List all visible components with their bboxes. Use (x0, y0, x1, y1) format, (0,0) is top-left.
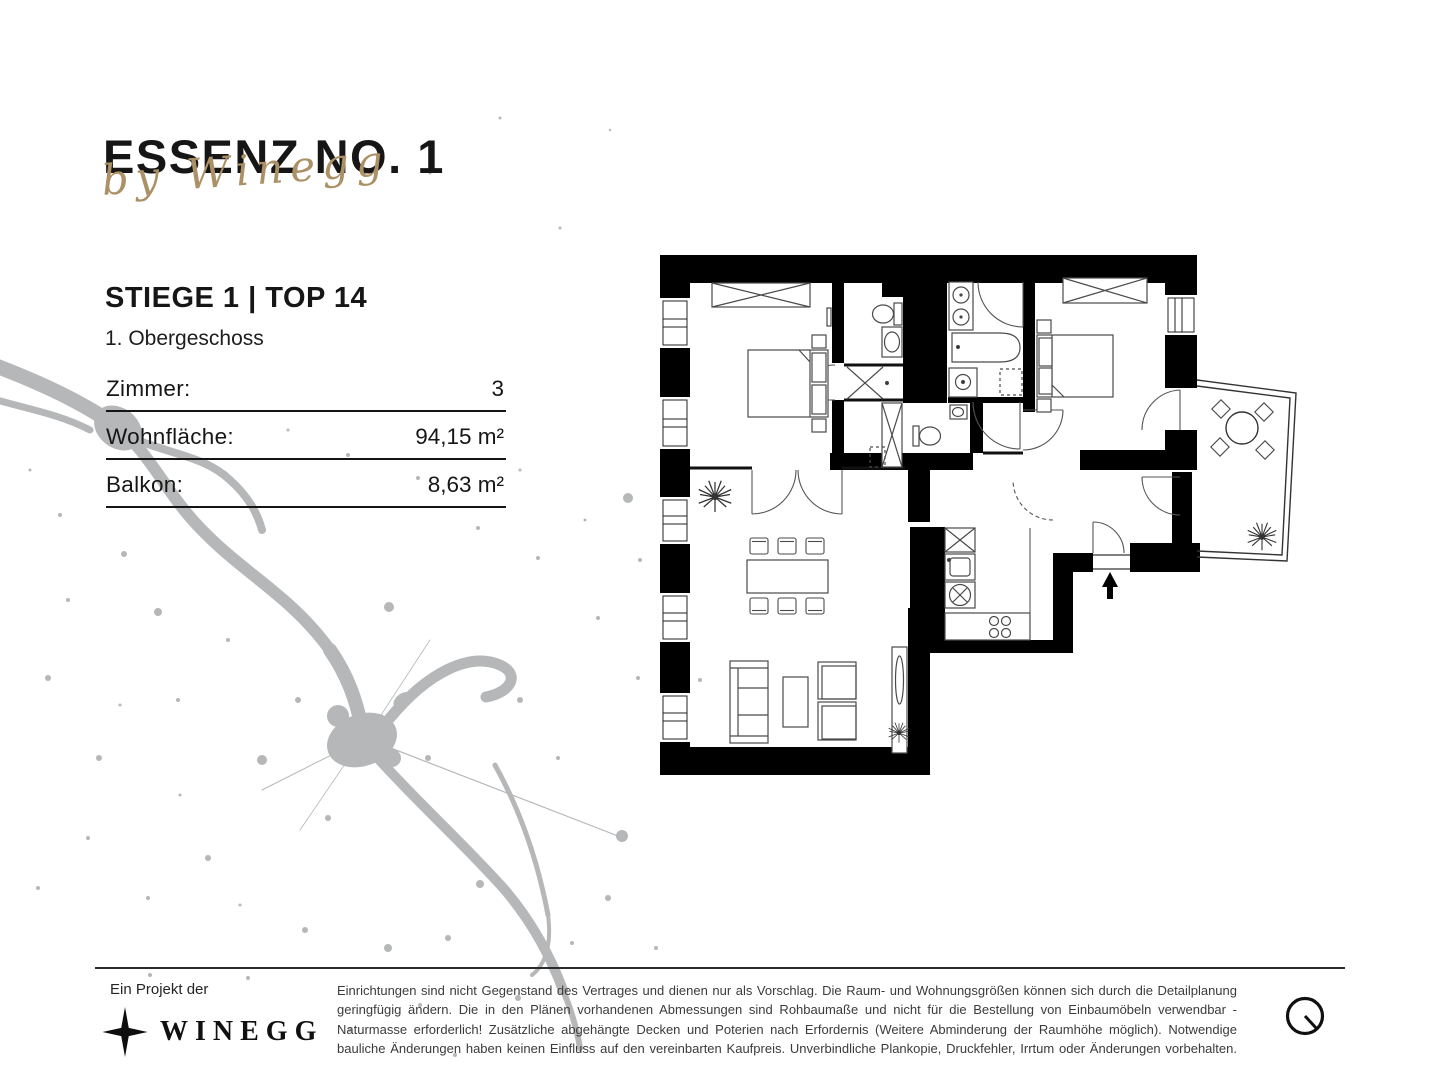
floor-label: 1. Obergeschoss (105, 327, 264, 351)
spec-label: Wohnfläche: (106, 424, 234, 450)
toilet-icon (873, 305, 894, 323)
bedroom1-furniture (712, 283, 831, 432)
spec-value: 3 (491, 376, 504, 402)
sofa-icon (730, 661, 768, 743)
armchair-icon (818, 702, 856, 740)
balcony-table (1226, 412, 1258, 444)
toilet-icon (920, 427, 941, 445)
winegg-logo: WINEGG (100, 1002, 323, 1062)
footer-divider (95, 967, 1345, 969)
spec-table: Zimmer: 3 Wohnfläche: 94,15 m² Balkon: 8… (106, 364, 506, 508)
armchair-icon (818, 662, 856, 699)
bedroom2-furniture (1037, 278, 1147, 412)
spec-row-zimmer: Zimmer: 3 (106, 364, 506, 412)
spec-label: Balkon: (106, 472, 183, 498)
bathtub-icon (952, 333, 1020, 362)
spec-row-wohnflaeche: Wohnfläche: 94,15 m² (106, 412, 506, 460)
spec-value: 8,63 m² (428, 472, 504, 498)
shower-icon (847, 367, 889, 399)
brochure-page: ESSENZ NO. 1 by Winegg STIEGE 1 | TOP 14… (0, 0, 1440, 1080)
plant-icon (1248, 523, 1277, 551)
north-orientation-icon (1283, 994, 1329, 1040)
spec-row-balkon: Balkon: 8,63 m² (106, 460, 506, 508)
plant-icon (699, 481, 732, 512)
wc-fixtures (913, 405, 967, 446)
unit-title: STIEGE 1 | TOP 14 (105, 283, 367, 315)
bathroom1-fixtures (847, 303, 902, 467)
balcony (1197, 380, 1296, 561)
disclaimer-text: Einrichtungen sind nicht Gegenstand des … (337, 981, 1237, 1059)
living-room-furniture (699, 481, 910, 753)
logo-text: WINEGG (160, 1016, 323, 1048)
kitchen-fixtures (945, 528, 1030, 640)
bathroom2-fixtures (949, 282, 1022, 397)
spec-value: 94,15 m² (415, 424, 504, 450)
spec-label: Zimmer: (106, 376, 191, 402)
coffee-table-icon (783, 677, 808, 727)
four-point-star-icon (100, 1002, 150, 1062)
entrance-arrow-icon (1102, 572, 1118, 599)
project-label: Ein Projekt der (110, 981, 208, 998)
kitchen-counter (945, 613, 1030, 640)
dining-table-icon (747, 560, 828, 593)
floor-plan (655, 250, 1305, 780)
